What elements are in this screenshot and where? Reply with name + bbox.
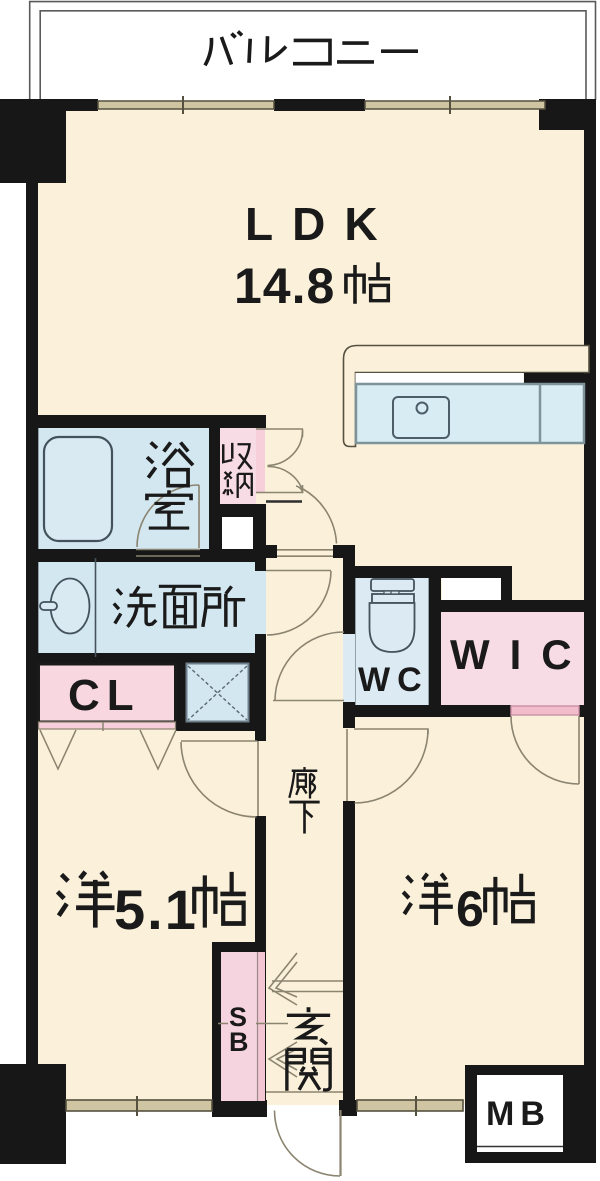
svg-text:WIC: WIC xyxy=(450,631,592,678)
svg-text:CL: CL xyxy=(68,671,141,720)
svg-text:5.1: 5.1 xyxy=(114,878,198,941)
svg-text:MB: MB xyxy=(486,1095,551,1133)
svg-text:B: B xyxy=(229,1027,249,1057)
svg-text:LDK: LDK xyxy=(245,198,397,250)
svg-text:14.8: 14.8 xyxy=(234,258,335,314)
svg-text:6: 6 xyxy=(456,881,484,937)
svg-text:WC: WC xyxy=(358,661,429,699)
